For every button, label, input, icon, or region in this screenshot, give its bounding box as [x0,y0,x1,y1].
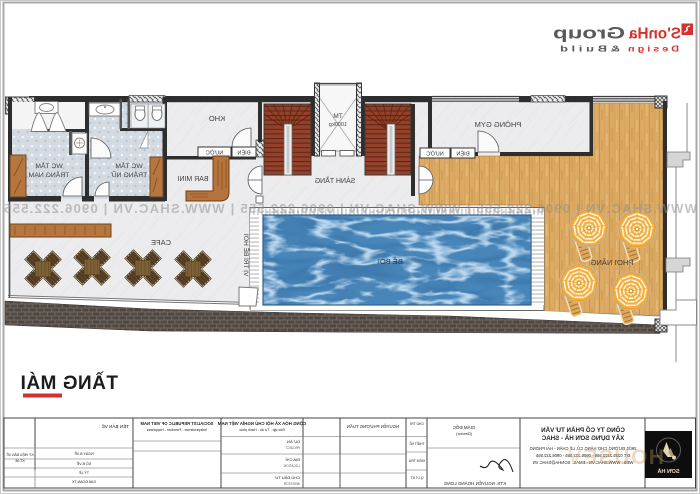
svg-text:Group: Group [553,24,625,43]
svg-text:KIỂM TRA: KIỂM TRA [408,458,425,463]
svg-text:SƠN HÀ: SƠN HÀ [657,468,679,475]
svg-text:PROJECT: PROJECT [285,446,300,450]
svg-text:LOCATION: LOCATION [283,464,300,468]
svg-text:PHÒNG GYM: PHÒNG GYM [475,120,522,129]
svg-text:ĐỊA CHỈ: ĐỊA CHỈ [286,457,300,462]
svg-text:TÊN BẢN VẼ :: TÊN BẢN VẼ : [99,422,129,429]
svg-text:TỶ LỆ: TỶ LỆ [78,470,89,475]
svg-text:ĐIỆN: ĐIỆN [456,150,469,158]
svg-text:TM: TM [333,113,342,120]
svg-text:KT-08: KT-08 [15,459,24,463]
svg-text:DỰ ÁN: DỰ ÁN [287,439,300,444]
svg-text:THIẾT KẾ: THIẾT KẾ [409,441,425,446]
svg-text:D e s i g n: D e s i g n [628,45,679,54]
svg-text:VỊ TRÍ BỂ HƠI: VỊ TRÍ BỂ HƠI [242,233,251,276]
svg-text:BAR MINI: BAR MINI [177,176,208,183]
svg-text:CÔNG TY CỔ PHẦN TƯ VẤN: CÔNG TY CỔ PHẦN TƯ VẤN [541,426,625,434]
svg-text:CHỦ ĐẦU TƯ: CHỦ ĐẦU TƯ [274,475,300,480]
svg-text:INVESTOR: INVESTOR [283,482,300,486]
svg-text:KTS. NGUYỄN HOÀNG LONG: KTS. NGUYỄN HOÀNG LONG [443,480,506,486]
svg-text:Độc lập - Tự do - Hạnh phúc: Độc lập - Tự do - Hạnh phúc [239,428,285,432]
svg-text:NGUYỄN PHƯƠNG TUẤN: NGUYỄN PHƯƠNG TUẤN [347,424,399,429]
svg-text:KHO: KHO [209,114,225,123]
svg-text:TRẮNG NỮ: TRẮNG NỮ [111,170,148,179]
svg-text:1000kg: 1000kg [329,122,347,128]
svg-text:BỂ BƠI: BỂ BƠI [377,257,403,266]
svg-text:CAFE: CAFE [151,238,171,247]
svg-text:& B u i l d: & B u i l d [560,45,620,54]
svg-text:XÂY DỰNG SƠN HÀ - SHAC: XÂY DỰNG SƠN HÀ - SHAC [541,435,624,442]
svg-text:WC TẮM: WC TẮM [115,161,143,170]
svg-text:HOUSEV: HOUSEV [566,446,664,469]
svg-text:S'onHa: S'onHa [629,26,681,43]
svg-text:NGÀY B.VẼ: NGÀY B.VẼ [74,451,94,456]
svg-text:TRẮNG NAM: TRẮNG NAM [28,170,69,179]
svg-text:GIÁM ĐỐC: GIÁM ĐỐC [452,424,476,430]
svg-text:PHƠI NẮNG: PHƠI NẮNG [590,258,633,267]
svg-text:NƯỚC: NƯỚC [206,150,223,157]
svg-text:TẦNG MÁI: TẦNG MÁI [20,372,118,394]
svg-text:KÝ HIỆU BẢN VẼ: KÝ HIỆU BẢN VẼ [6,452,34,457]
svg-text:Independence - Freedom - Happi: Independence - Freedom - Happiness [147,428,208,432]
svg-text:CỘNG HÒA XÃ HỘI CHỦ NGHĨA VIỆT: CỘNG HÒA XÃ HỘI CHỦ NGHĨA VIỆT NAM [217,421,306,426]
svg-text:WC TẮM: WC TẮM [35,161,63,170]
svg-text:(Director): (Director) [455,432,472,436]
svg-text:WWW.SHAC.VN | 0906.222.555 | W: WWW.SHAC.VN | 0906.222.555 | WWW.SHAC.VN… [3,201,697,216]
svg-text:ĐIỆN: ĐIỆN [237,149,250,157]
svg-text:GIAI ĐOẠN TK: GIAI ĐOẠN TK [71,480,96,484]
svg-text:NƯỚC: NƯỚC [426,151,443,158]
svg-text:SOCIALIST REPUBLIC OF VIET NAM: SOCIALIST REPUBLIC OF VIET NAM [140,421,214,426]
svg-text:Q.LÝ KT: Q.LÝ KT [410,476,423,480]
svg-text:SỐ B.VẼ: SỐ B.VẼ [76,461,91,466]
svg-text:CHỦ TRÌ: CHỦ TRÌ [410,421,424,426]
